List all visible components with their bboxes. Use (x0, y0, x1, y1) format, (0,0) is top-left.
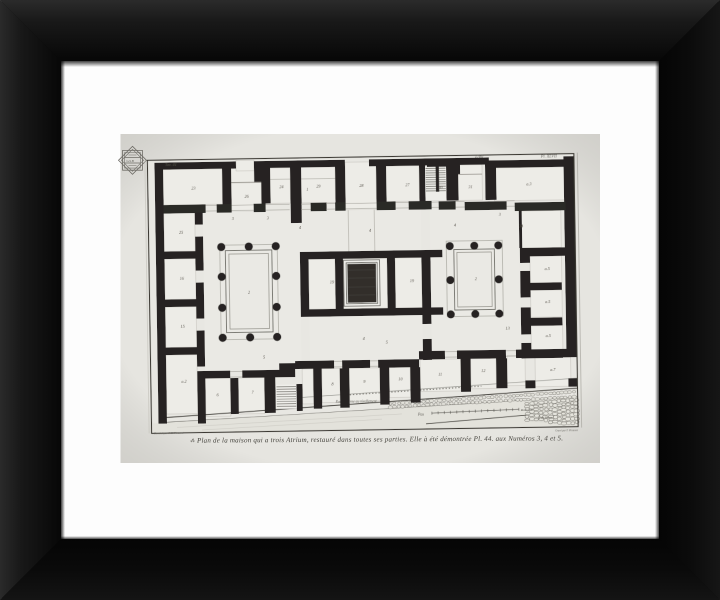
svg-text:1: 1 (306, 187, 308, 192)
svg-text:Gravé par F. Piranesi: Gravé par F. Piranesi (555, 429, 578, 432)
svg-text:4: 4 (369, 228, 371, 233)
svg-text:4: 4 (299, 225, 301, 230)
svg-text:25: 25 (179, 230, 183, 235)
svg-text:11: 11 (438, 372, 442, 377)
svg-text:a.3: a.3 (526, 181, 531, 186)
svg-text:⁂: ⁂ (190, 438, 195, 443)
svg-text:Pl. XLVII: Pl. XLVII (540, 153, 558, 158)
svg-text:5: 5 (263, 355, 265, 360)
svg-text:3: 3 (267, 215, 269, 220)
svg-text:4: 4 (454, 223, 456, 228)
svg-text:23: 23 (191, 186, 195, 191)
svg-text:1780: 1780 (475, 154, 484, 159)
svg-text:3: 3 (499, 212, 501, 217)
svg-text:24: 24 (279, 184, 283, 189)
svg-text:a.5: a.5 (545, 299, 550, 304)
svg-text:15: 15 (180, 324, 184, 329)
svg-text:a.5: a.5 (546, 333, 551, 338)
svg-text:3: 3 (232, 216, 234, 221)
svg-text:Tav. 41: Tav. 41 (165, 162, 177, 167)
svg-text:a.2: a.2 (181, 379, 186, 384)
svg-text:Pas: Pas (417, 412, 425, 417)
svg-text:P. de Rome: P. de Rome (537, 416, 553, 420)
svg-text:a.5: a.5 (545, 266, 550, 271)
svg-text:13: 13 (506, 326, 510, 331)
svg-text:12: 12 (481, 368, 485, 373)
svg-text:Romains: Romains (520, 408, 534, 412)
svg-text:34: 34 (519, 223, 523, 228)
svg-text:4: 4 (363, 336, 365, 341)
svg-text:2: 2 (248, 290, 250, 295)
svg-text:5: 5 (386, 340, 388, 345)
svg-text:2: 2 (475, 276, 477, 281)
svg-text:G.S.B: G.S.B (127, 159, 134, 163)
svg-text:Dessiné par J. B. Piranesi: Dessiné par J. B. Piranesi (153, 432, 184, 435)
svg-text:31: 31 (468, 184, 472, 189)
